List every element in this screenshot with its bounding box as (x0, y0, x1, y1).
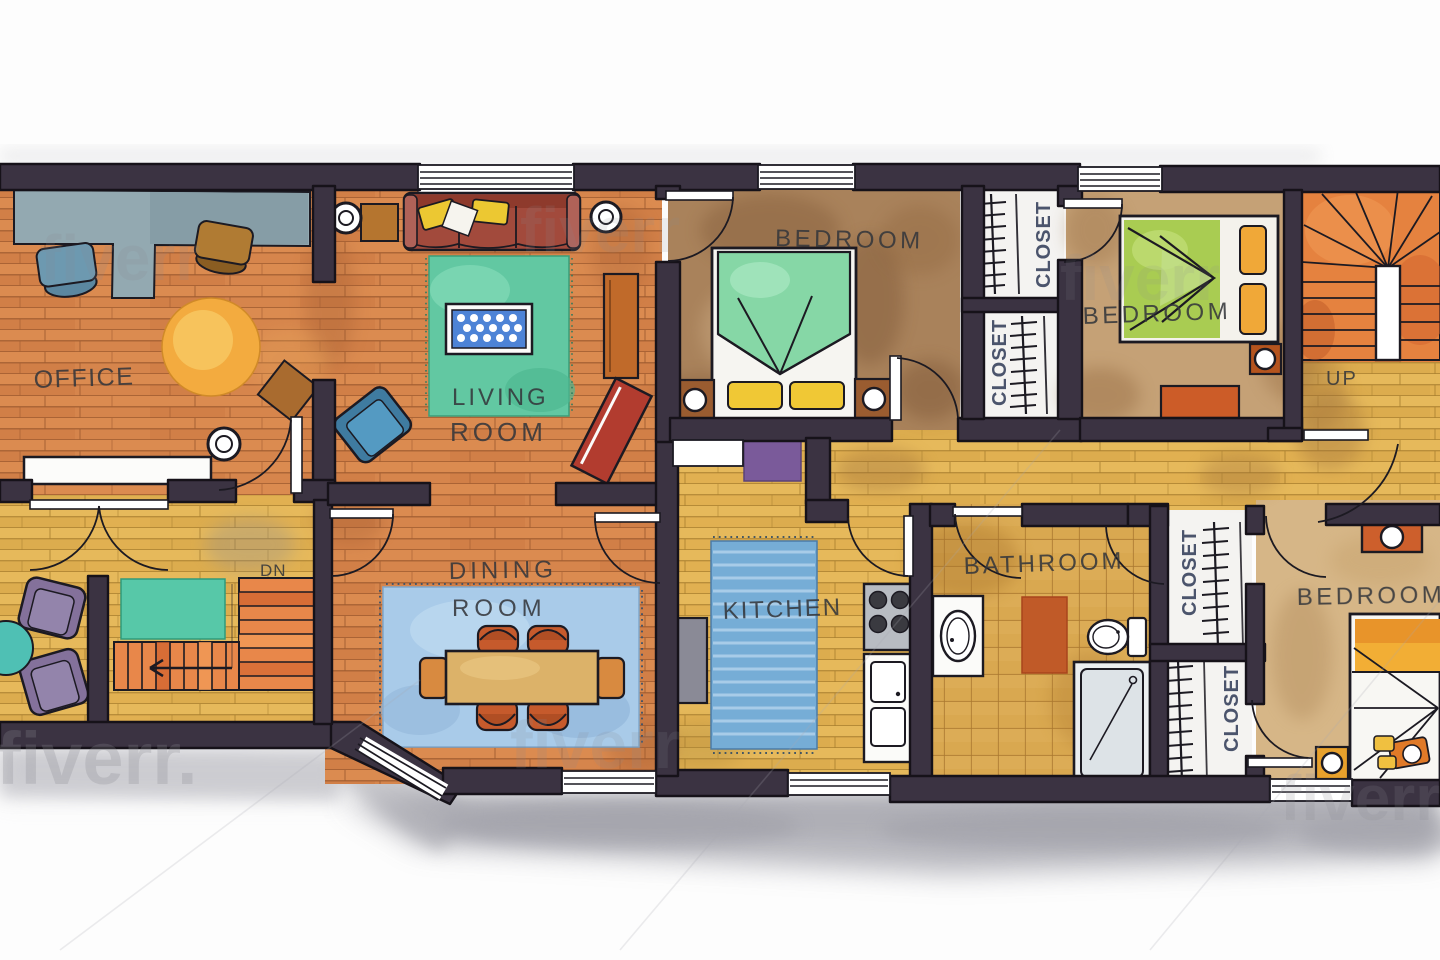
svg-text:CLOSET: CLOSET (1221, 665, 1243, 752)
svg-text:fiverr: fiverr (520, 194, 680, 266)
svg-text:ROOM: ROOM (452, 595, 547, 622)
svg-text:BEDROOM: BEDROOM (1297, 581, 1440, 611)
svg-text:fiverr.: fiverr. (0, 717, 198, 800)
svg-text:CLOSET: CLOSET (1033, 201, 1055, 288)
svg-text:DN: DN (260, 561, 287, 580)
svg-text:KITCHEN: KITCHEN (722, 594, 842, 625)
svg-text:fiverr: fiverr (510, 707, 680, 783)
svg-text:UP: UP (1326, 368, 1358, 390)
svg-text:LIVING: LIVING (452, 384, 549, 411)
svg-text:OFFICE: OFFICE (33, 363, 135, 394)
svg-text:CLOSET: CLOSET (1179, 529, 1201, 616)
svg-text:DINING: DINING (449, 556, 557, 585)
svg-text:BATHROOM: BATHROOM (963, 547, 1125, 580)
svg-text:ROOM: ROOM (450, 417, 547, 447)
svg-text:BEDROOM: BEDROOM (775, 225, 924, 255)
svg-text:CLOSET: CLOSET (989, 319, 1011, 406)
svg-text:fiverr: fiverr (1280, 762, 1440, 834)
svg-text:fiverr: fiverr (40, 222, 200, 294)
svg-text:fiverr: fiverr (1060, 242, 1220, 314)
